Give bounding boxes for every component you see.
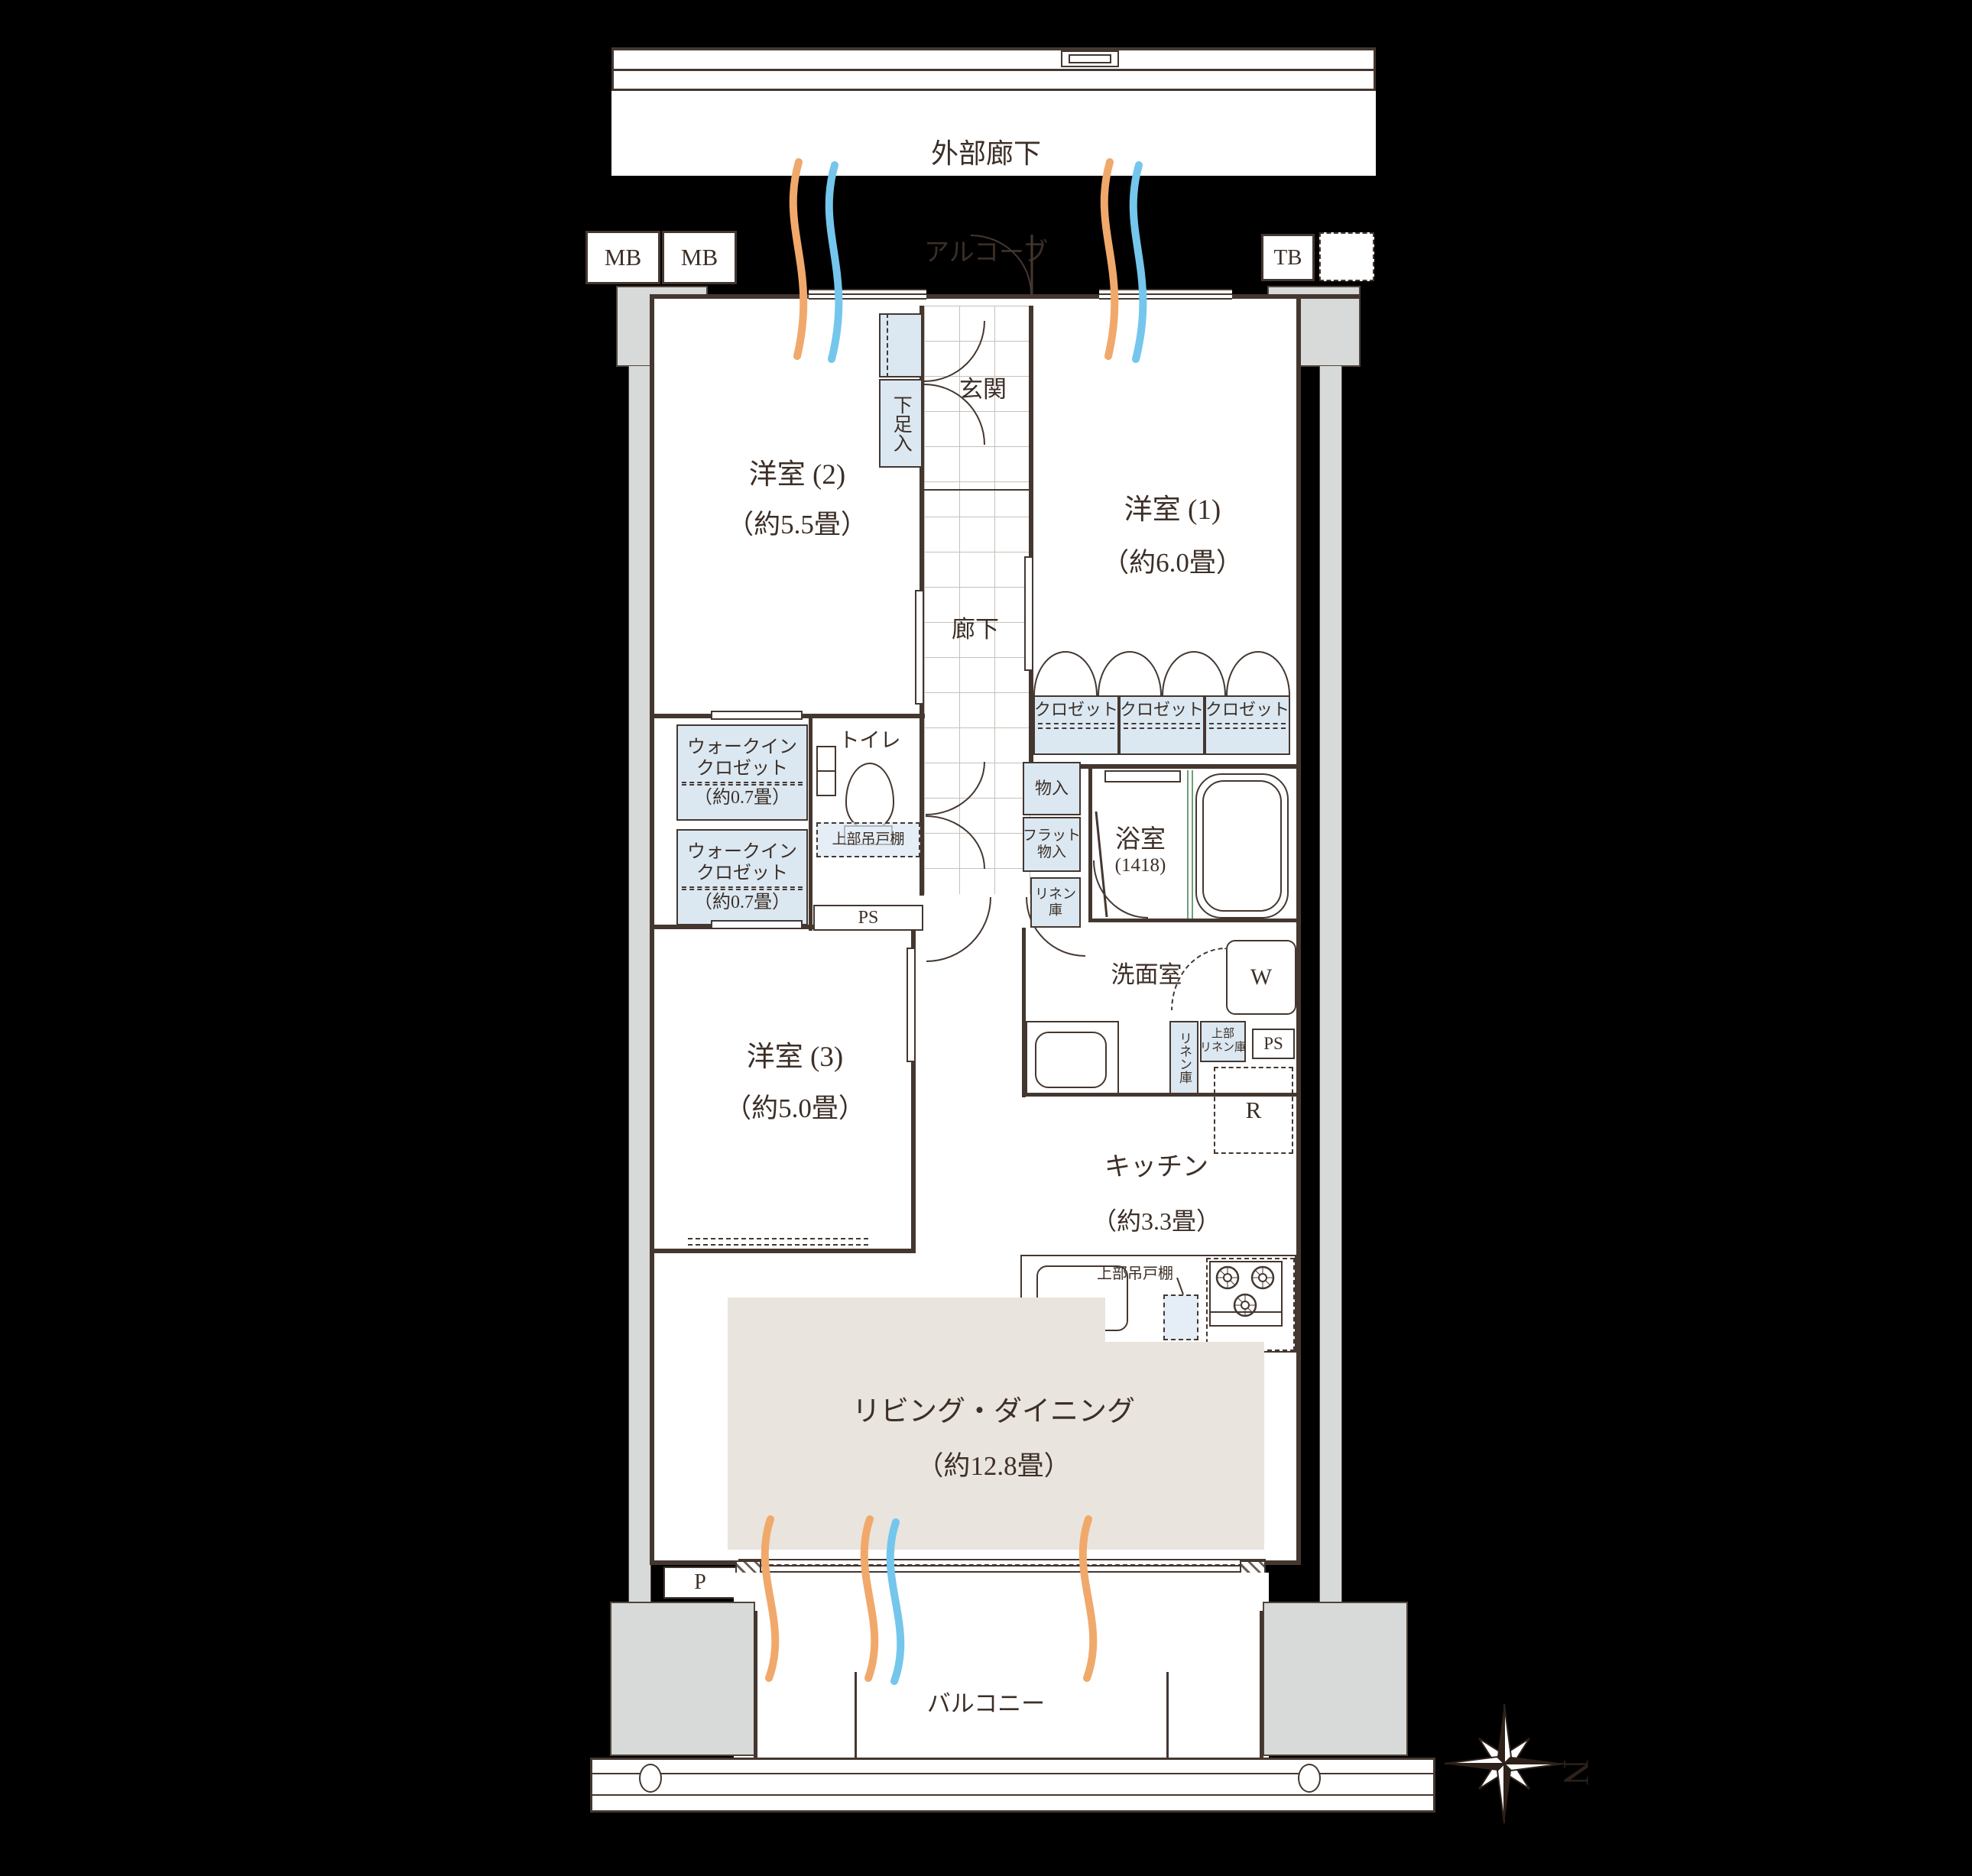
ps-toilet: PS [813, 905, 923, 931]
western3-sliding-door [907, 948, 916, 1062]
balcony-divider-1 [855, 1672, 857, 1761]
washer-space: W [1226, 940, 1296, 1015]
ps-washroom: PS [1252, 1029, 1295, 1059]
side-wall-left [628, 365, 651, 1605]
upper-linen-line2: リネン庫 [1200, 1042, 1246, 1055]
wic2-size: （約0.7畳） [694, 892, 790, 913]
flat-storage: フラット 物入 [1023, 817, 1081, 872]
linen-washroom: リネン庫 [1169, 1021, 1198, 1094]
window-western2 [809, 289, 926, 300]
western3-size: （約5.0畳） [696, 1093, 894, 1124]
wic2-line2: クロゼット [696, 863, 788, 884]
hallway-label: 廊下 [942, 616, 1009, 644]
meter-box-1-label: MB [605, 244, 641, 272]
balcony-label: バルコニー [887, 1690, 1085, 1719]
meter-box-2: MB [662, 231, 737, 284]
storage-box-label: 物入 [1035, 779, 1069, 799]
linen-hall: リネン 庫 [1030, 877, 1081, 928]
meter-box-1: MB [585, 231, 660, 284]
column-bottom-left [610, 1602, 755, 1756]
linen-hall-line2: 庫 [1049, 902, 1062, 919]
shoe-cabinet-upper [879, 313, 923, 377]
ps-washroom-label: PS [1263, 1033, 1283, 1054]
storage-box: 物入 [1023, 762, 1081, 815]
living-name: リビング・ダイニング [825, 1395, 1162, 1429]
closet-1: クロゼット [1033, 695, 1119, 755]
kitchen-size: （約3.3畳） [1069, 1207, 1244, 1236]
ps-toilet-label: PS [858, 907, 879, 928]
living-size: （約12.8畳） [864, 1450, 1124, 1482]
fridge-space: R [1214, 1067, 1293, 1154]
closet-3: クロゼット [1205, 695, 1290, 755]
wall-top [650, 294, 810, 299]
wic1-size: （約0.7畳） [694, 787, 790, 808]
western1-name: 洋室 (1) [1073, 494, 1272, 527]
wall-left [650, 294, 654, 1565]
balcony-floor [734, 1573, 1269, 1761]
toilet-upper-cabinet: 上部吊戸棚 [816, 822, 920, 857]
closet-1-label: クロゼット [1034, 700, 1118, 720]
floor-plan: 外部廊下 アルコーブ MB MB TB [0, 0, 1972, 1876]
outer-corridor-label: 外部廊下 [879, 138, 1093, 170]
balcony-drain-right [1298, 1764, 1321, 1793]
western1-size: （約6.0畳） [1073, 547, 1272, 578]
kitchen-upper-cabinet-label: 上部吊戸棚 [1093, 1265, 1177, 1284]
closet-2: クロゼット [1119, 695, 1205, 755]
wic2-line1: ウォークイン [687, 841, 797, 863]
trunk-box-extension [1319, 232, 1374, 281]
wic1-line2: クロゼット [696, 758, 788, 779]
fridge-label: R [1246, 1097, 1262, 1125]
pipe-space-p-label: P [694, 1570, 706, 1595]
wic1-line1: ウォークイン [687, 737, 797, 758]
western3-name: 洋室 (3) [696, 1041, 894, 1074]
western1-sliding-door [1024, 556, 1033, 671]
bath-window [1187, 770, 1193, 919]
pipe-space-p: P [663, 1567, 737, 1599]
side-wall-right [1319, 365, 1342, 1605]
western2-size: （約5.5畳） [698, 509, 897, 540]
walkin-closet-2: ウォークイン クロゼット （約0.7畳） [676, 829, 808, 925]
shoe-cabinet-label: 下足入 [890, 395, 913, 452]
balcony-sliding-door [738, 1559, 1266, 1573]
meter-box-2-label: MB [681, 244, 718, 272]
compass-north-label: N [1555, 1759, 1596, 1786]
compass-rose: N [1445, 1704, 1596, 1823]
trunk-box-label: TB [1273, 245, 1302, 271]
toilet-upper-cabinet-label: 上部吊戸棚 [832, 831, 904, 848]
toilet-label: トイレ [838, 729, 902, 753]
flat-storage-line2: 物入 [1037, 844, 1066, 861]
linen-washroom-label: リネン庫 [1176, 1032, 1192, 1084]
western2-name: 洋室 (2) [698, 458, 897, 492]
upper-linen: 上部 リネン庫 [1200, 1021, 1246, 1062]
bath-name: 浴室 [1104, 825, 1177, 855]
shoe-cabinet: 下足入 [879, 379, 923, 468]
column-bottom-right [1263, 1602, 1408, 1756]
linen-hall-line1: リネン [1035, 886, 1076, 902]
balcony-divider-2 [1166, 1672, 1169, 1761]
balcony-drain-left [639, 1764, 662, 1793]
trunk-box: TB [1261, 234, 1315, 281]
upper-linen-line1: 上部 [1211, 1028, 1234, 1042]
kitchen-upper-cabinet [1163, 1294, 1198, 1340]
window-western1 [1099, 289, 1232, 300]
stove [1209, 1261, 1283, 1327]
living-rug-right [1105, 1342, 1264, 1550]
closet-3-label: クロゼット [1205, 700, 1289, 720]
flat-storage-line1: フラット [1023, 828, 1081, 844]
washer-label: W [1250, 964, 1272, 990]
walkin-closet-1: ウォークイン クロゼット （約0.7畳） [676, 724, 808, 821]
bath-counter [1104, 770, 1181, 782]
kitchen-name: キッチン [1069, 1152, 1244, 1183]
western2-sliding-door [915, 590, 924, 705]
closet-2-label: クロゼット [1120, 700, 1204, 720]
vanity-sink [1035, 1032, 1107, 1088]
wall-right [1296, 294, 1301, 1565]
